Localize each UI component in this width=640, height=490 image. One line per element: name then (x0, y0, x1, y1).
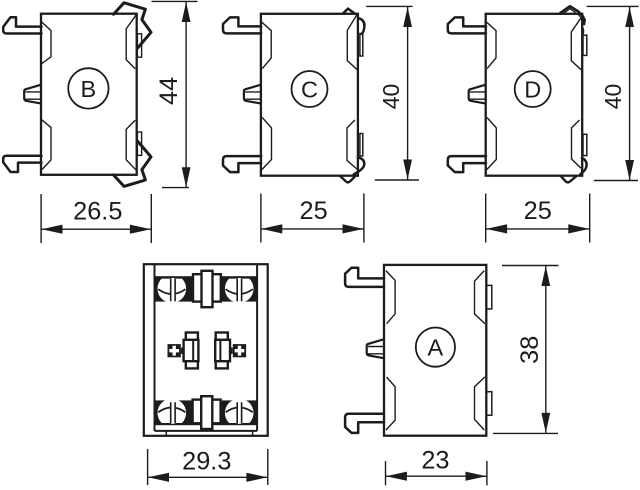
svg-text:25: 25 (524, 197, 552, 225)
svg-text:C: C (301, 77, 318, 103)
svg-text:40: 40 (378, 84, 404, 110)
svg-text:25: 25 (300, 197, 328, 225)
svg-text:B: B (81, 76, 97, 102)
svg-text:26.5: 26.5 (73, 198, 122, 226)
svg-text:D: D (524, 77, 541, 103)
svg-text:29.3: 29.3 (182, 448, 231, 476)
svg-text:44: 44 (155, 77, 183, 105)
svg-text:A: A (428, 335, 444, 361)
svg-text:40: 40 (600, 84, 626, 110)
svg-text:23: 23 (421, 446, 449, 474)
svg-text:38: 38 (516, 336, 544, 364)
